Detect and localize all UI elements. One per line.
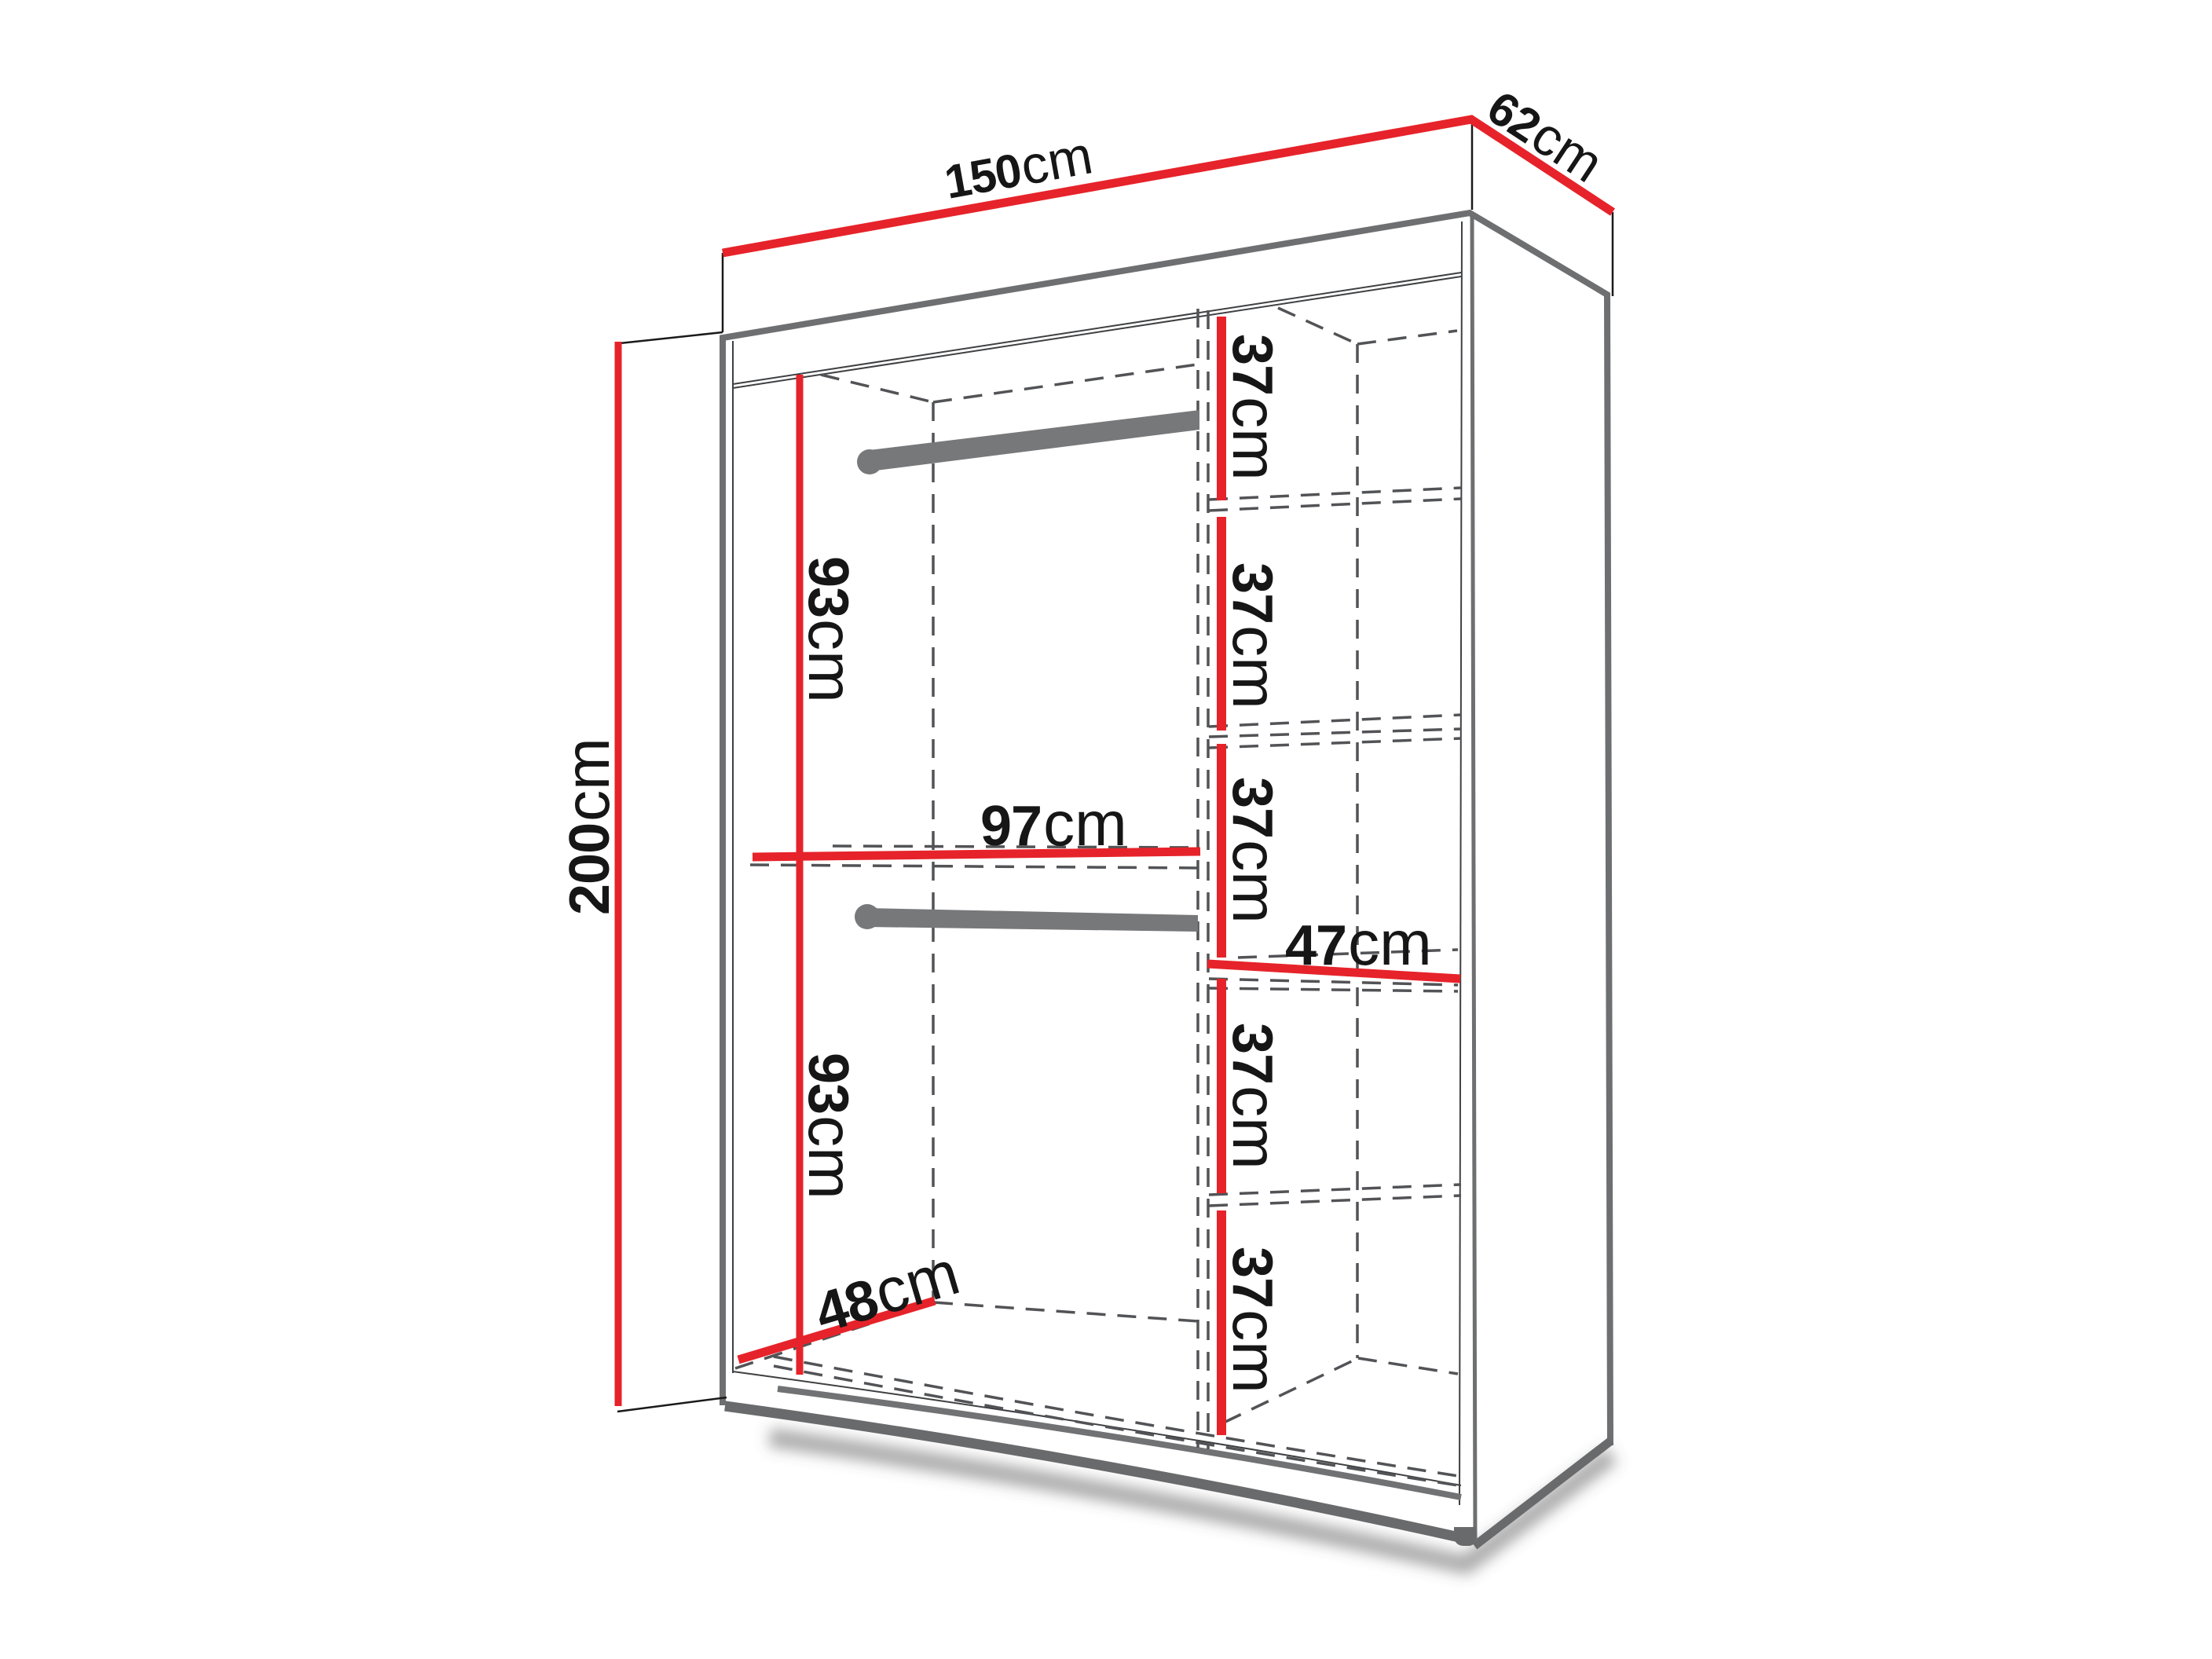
svg-text:37cm: 37cm xyxy=(1220,562,1290,709)
svg-text:93cm: 93cm xyxy=(796,556,866,703)
svg-text:37cm: 37cm xyxy=(1220,1247,1290,1393)
svg-text:47cm: 47cm xyxy=(1285,908,1432,978)
svg-text:200cm: 200cm xyxy=(552,738,622,915)
svg-text:93cm: 93cm xyxy=(796,1053,866,1199)
svg-text:37cm: 37cm xyxy=(1220,777,1290,924)
svg-text:37cm: 37cm xyxy=(1220,1023,1290,1170)
svg-text:97cm: 97cm xyxy=(980,789,1127,859)
svg-text:37cm: 37cm xyxy=(1220,334,1290,481)
